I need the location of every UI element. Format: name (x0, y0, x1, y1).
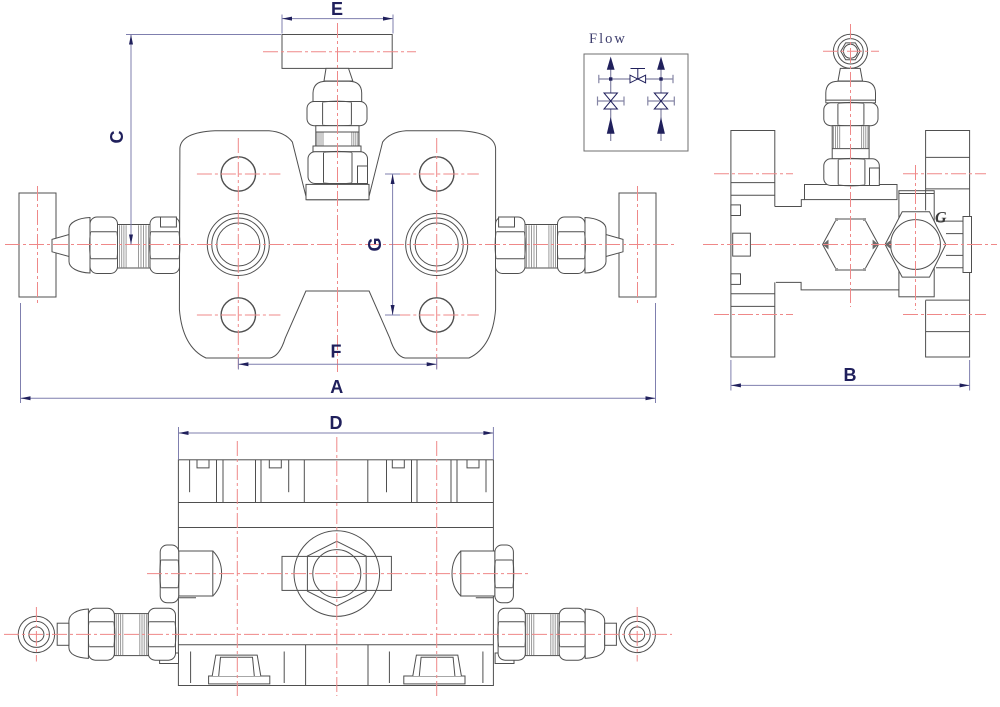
svg-text:Flow: Flow (589, 31, 627, 47)
svg-text:G: G (935, 210, 947, 227)
svg-text:G: G (365, 237, 385, 251)
svg-text:E: E (331, 0, 343, 19)
svg-text:C: C (107, 131, 127, 144)
svg-text:A: A (330, 377, 343, 397)
svg-text:F: F (331, 342, 342, 362)
svg-text:D: D (330, 413, 343, 433)
svg-text:B: B (844, 365, 857, 385)
